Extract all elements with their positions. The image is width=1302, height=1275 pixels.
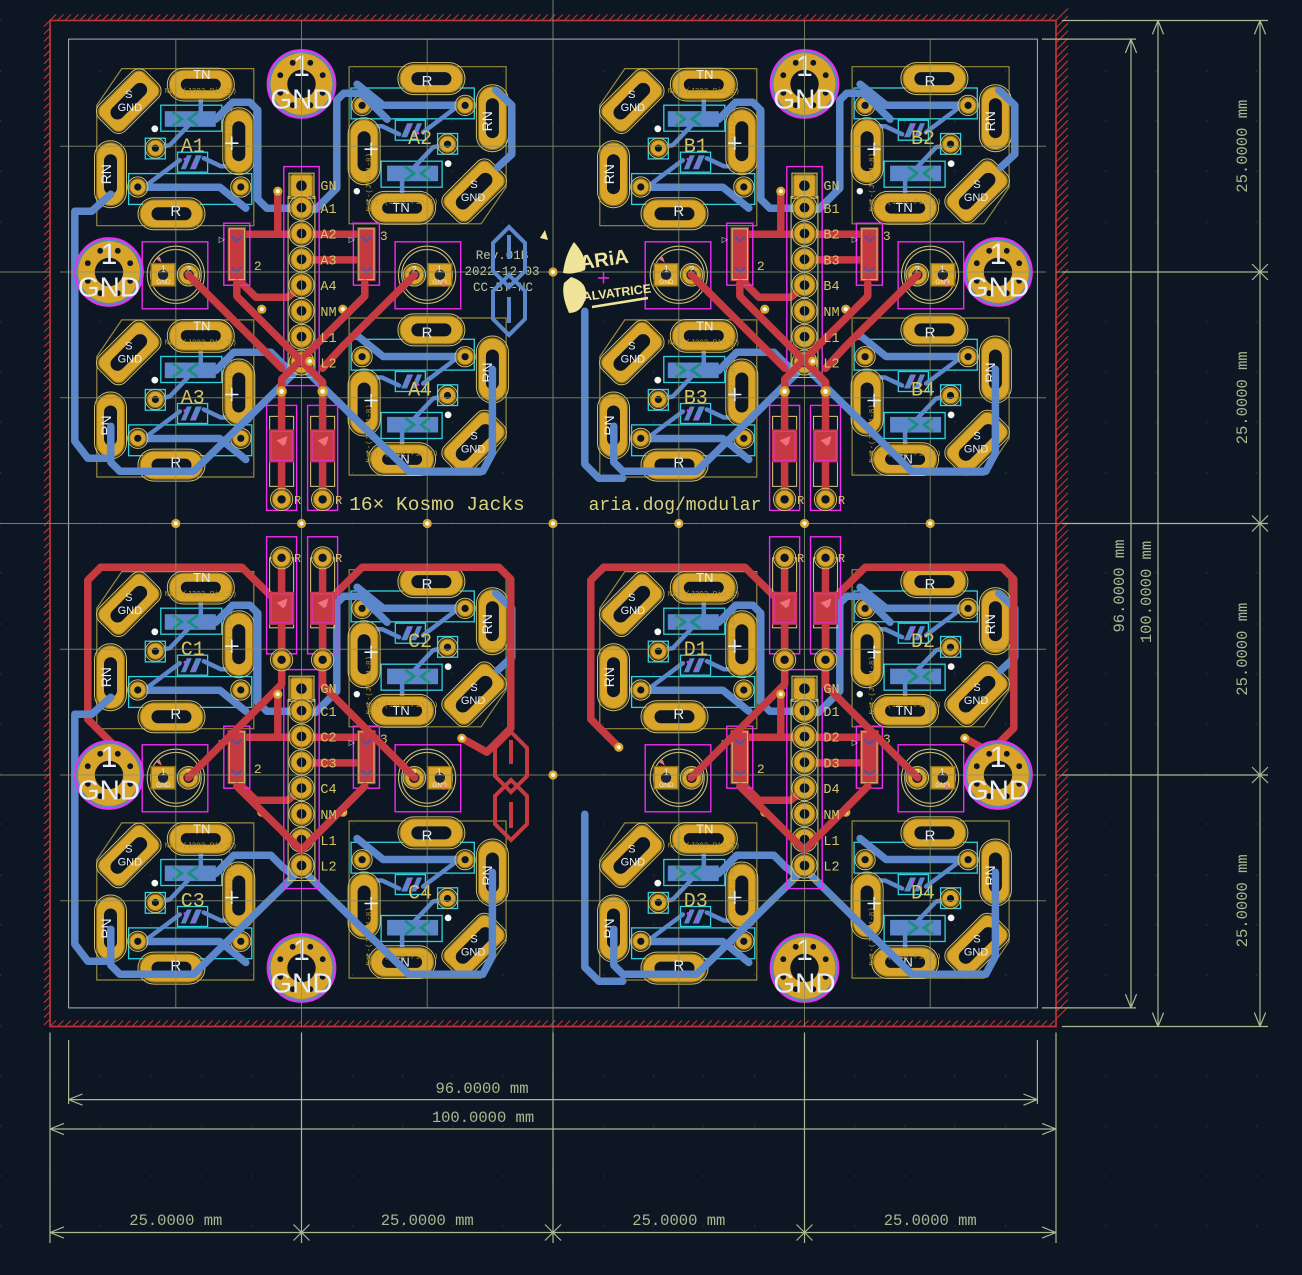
svg-text:96.0000 mm: 96.0000 mm — [1111, 539, 1129, 632]
svg-text:A4: A4 — [320, 280, 336, 295]
svg-text:C4: C4 — [320, 783, 336, 798]
svg-text:C1: C1 — [181, 639, 205, 662]
svg-text:D4: D4 — [823, 783, 839, 798]
svg-text:D2: D2 — [823, 732, 839, 747]
svg-text:NM: NM — [823, 306, 839, 321]
svg-text:B1: B1 — [823, 203, 839, 218]
svg-text:25.0000 mm: 25.0000 mm — [381, 1212, 474, 1230]
svg-text:R: R — [335, 552, 342, 566]
svg-text:L2: L2 — [320, 358, 336, 373]
svg-text:A2: A2 — [408, 128, 432, 151]
svg-text:A1: A1 — [181, 136, 205, 159]
svg-text:L2: L2 — [320, 861, 336, 876]
svg-text:R: R — [294, 494, 301, 508]
svg-text:100.0000 mm: 100.0000 mm — [432, 1109, 534, 1127]
svg-text:25.0000 mm: 25.0000 mm — [1234, 100, 1252, 193]
svg-text:C1: C1 — [320, 706, 336, 721]
svg-text:L1: L1 — [320, 332, 336, 347]
svg-text:B4: B4 — [823, 280, 839, 295]
svg-text:B3: B3 — [823, 254, 839, 269]
svg-text:NM: NM — [320, 809, 336, 824]
svg-text:L2: L2 — [823, 861, 839, 876]
svg-text:R: R — [335, 494, 342, 508]
svg-text:R: R — [797, 494, 804, 508]
svg-text:25.0000 mm: 25.0000 mm — [129, 1212, 222, 1230]
svg-text:100.0000 mm: 100.0000 mm — [1138, 541, 1156, 643]
svg-text:Rev.01B: Rev.01B — [476, 249, 529, 263]
svg-text:R: R — [797, 552, 804, 566]
svg-text:A1: A1 — [320, 203, 336, 218]
svg-text:L2: L2 — [823, 358, 839, 373]
svg-text:GN: GN — [823, 683, 839, 698]
svg-text:R: R — [838, 494, 845, 508]
svg-text:C2: C2 — [320, 732, 336, 747]
svg-text:2022-12-03: 2022-12-03 — [464, 265, 539, 279]
svg-text:D1: D1 — [823, 706, 839, 721]
svg-text:A4: A4 — [408, 380, 432, 403]
svg-text:L1: L1 — [823, 835, 839, 850]
svg-text:D3: D3 — [684, 891, 708, 914]
svg-text:B2: B2 — [911, 128, 935, 151]
svg-text:25.0000 mm: 25.0000 mm — [884, 1212, 977, 1230]
svg-text:L1: L1 — [823, 332, 839, 347]
svg-text:25.0000 mm: 25.0000 mm — [1234, 351, 1252, 444]
svg-text:GN: GN — [823, 180, 839, 195]
svg-text:A3: A3 — [181, 388, 205, 411]
svg-text:B1: B1 — [684, 136, 708, 159]
svg-text:D4: D4 — [911, 883, 935, 906]
svg-text:R: R — [294, 552, 301, 566]
svg-text:A3: A3 — [320, 254, 336, 269]
svg-text:B2: B2 — [823, 229, 839, 244]
svg-text:C4: C4 — [408, 883, 432, 906]
svg-text:C3: C3 — [181, 891, 205, 914]
svg-text:B4: B4 — [911, 380, 935, 403]
svg-text:GN: GN — [320, 180, 336, 195]
svg-text:aria.dog/modular: aria.dog/modular — [589, 496, 762, 516]
svg-text:D2: D2 — [911, 631, 935, 654]
svg-text:96.0000 mm: 96.0000 mm — [435, 1080, 528, 1098]
svg-text:25.0000 mm: 25.0000 mm — [1234, 854, 1252, 947]
svg-text:A2: A2 — [320, 229, 336, 244]
svg-text:C3: C3 — [320, 757, 336, 772]
svg-text:25.0000 mm: 25.0000 mm — [632, 1212, 725, 1230]
svg-text:D3: D3 — [823, 757, 839, 772]
svg-text:B3: B3 — [684, 388, 708, 411]
svg-text:NM: NM — [823, 809, 839, 824]
svg-text:GN: GN — [320, 683, 336, 698]
svg-text:NM: NM — [320, 306, 336, 321]
svg-text:C2: C2 — [408, 631, 432, 654]
svg-text:D1: D1 — [684, 639, 708, 662]
svg-text:R: R — [838, 552, 845, 566]
svg-text:L1: L1 — [320, 835, 336, 850]
svg-text:16× Kosmo Jacks: 16× Kosmo Jacks — [349, 494, 525, 516]
svg-text:25.0000 mm: 25.0000 mm — [1234, 603, 1252, 696]
